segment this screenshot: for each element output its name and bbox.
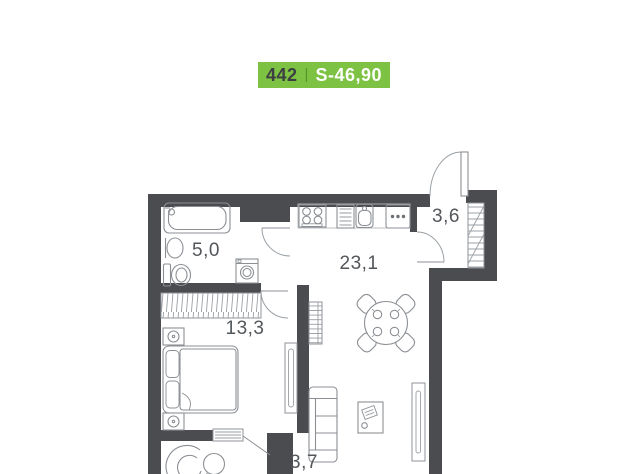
- washing-machine-symbol: [236, 259, 258, 283]
- hallway-kitchen-door: [417, 232, 444, 262]
- sofa-symbol: [309, 387, 337, 462]
- wc-fixtures: [166, 446, 224, 474]
- bedroom-wardrobe: [161, 293, 261, 318]
- tv-console: [412, 383, 425, 461]
- wall-bedroom-bottom: [148, 430, 213, 441]
- living-furniture: [309, 292, 417, 462]
- cabinet-dots-symbol: [386, 205, 410, 228]
- entrance-door: [430, 152, 468, 196]
- label-hallway-area: 3,6: [432, 206, 460, 227]
- dining-table-symbol: [355, 292, 417, 354]
- double-bed-symbol: [163, 346, 238, 413]
- bathroom-door: [262, 228, 290, 256]
- wall-main-right: [429, 268, 442, 474]
- floor-plan-drawing: 5,0 3,6 23,1 13,3 3,7: [0, 0, 640, 474]
- coffee-table-symbol: [358, 402, 383, 433]
- nightstand-bottom-symbol: [163, 413, 184, 430]
- kitchen-sink-symbol: [356, 205, 373, 228]
- toilet-symbol: [164, 264, 191, 286]
- wc-sink-symbol: [166, 446, 224, 474]
- bedroom-furniture: [163, 328, 238, 430]
- nightstand-top-symbol: [163, 328, 184, 345]
- wall-kitchen-partition: [410, 200, 417, 232]
- label-wc-area: 3,7: [290, 452, 318, 473]
- wall-duct-pier: [240, 194, 290, 222]
- bedroom-door: [261, 291, 288, 318]
- label-kitchen-living-area: 23,1: [340, 253, 379, 274]
- living-bookshelf: [309, 302, 322, 344]
- bedroom-radiator: [285, 343, 297, 413]
- kitchen-counter: [298, 204, 410, 228]
- bedroom-shelf: [213, 429, 243, 441]
- label-bedroom-area: 13,3: [226, 318, 265, 339]
- hallway-wardrobe: [468, 203, 484, 268]
- wall-hallway-right: [484, 190, 497, 281]
- washbasin-symbol: [166, 238, 184, 258]
- stove-symbol: [299, 205, 326, 227]
- wc-opening: [243, 436, 270, 455]
- wall-bedroom-living: [297, 285, 309, 433]
- bathtub-symbol: [164, 203, 230, 233]
- floor-plan-page: { "badge": { "unit_number": "442", "sepa…: [0, 0, 640, 474]
- dish-rack-symbol: [337, 205, 354, 228]
- label-bathroom-area: 5,0: [192, 240, 220, 261]
